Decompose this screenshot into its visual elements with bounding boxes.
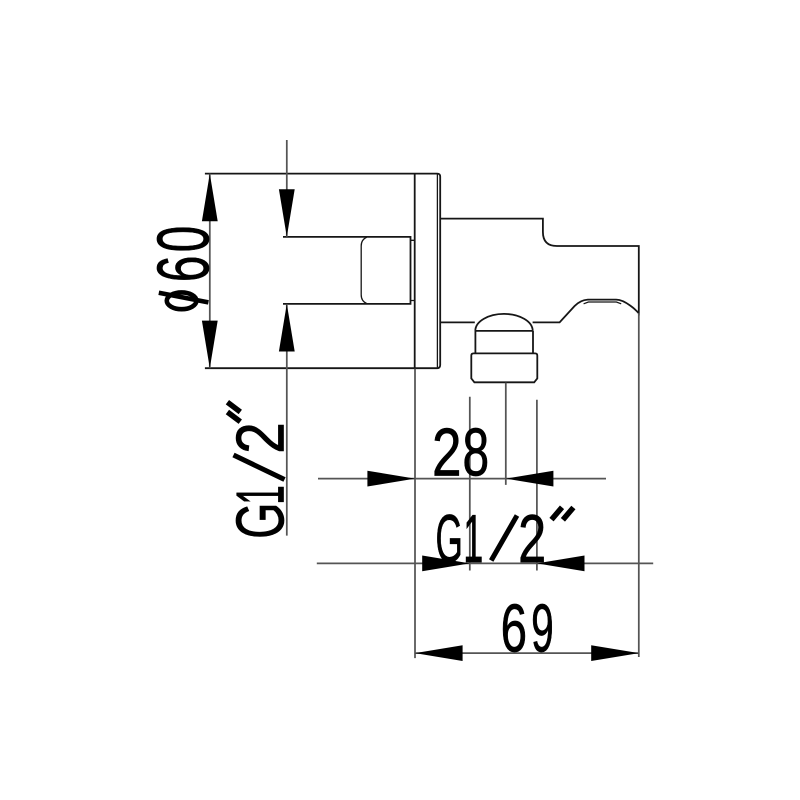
- svg-text:6: 6: [143, 256, 225, 283]
- svg-text:0: 0: [143, 226, 225, 253]
- svg-text:G: G: [436, 502, 463, 577]
- svg-text:G: G: [223, 503, 299, 539]
- svg-text:8: 8: [462, 416, 489, 491]
- svg-text:2: 2: [518, 501, 546, 577]
- svg-text:6: 6: [501, 591, 527, 666]
- svg-text:1: 1: [463, 501, 483, 577]
- svg-text:1: 1: [223, 485, 299, 504]
- svg-text:2: 2: [432, 414, 462, 490]
- svg-text:9: 9: [531, 589, 554, 665]
- svg-text:2: 2: [223, 422, 299, 454]
